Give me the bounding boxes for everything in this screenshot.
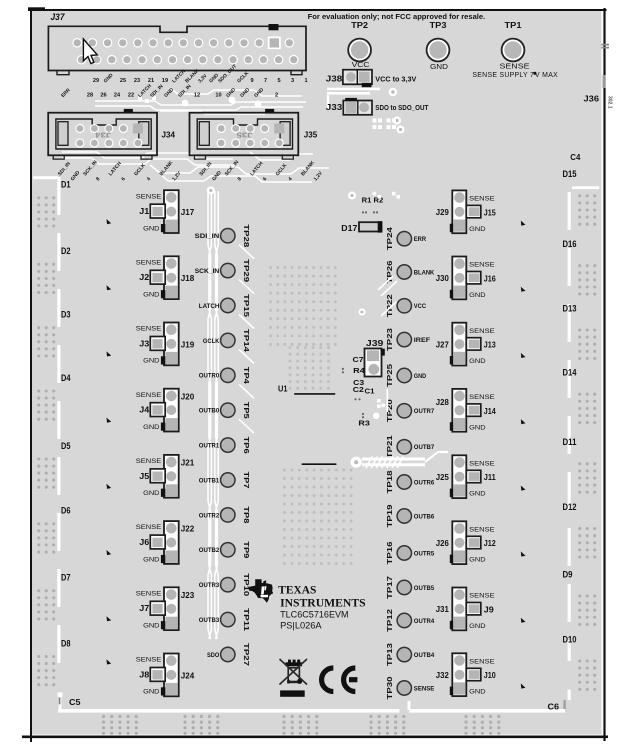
svg-text:J9: J9 [484,605,495,614]
svg-text:OUTB1: OUTB1 [199,477,220,484]
svg-text:SENSE: SENSE [469,526,495,533]
svg-text:TP8: TP8 [242,506,251,523]
svg-text:J13: J13 [484,341,497,350]
svg-text:GND: GND [143,556,160,563]
svg-text:TP6: TP6 [242,437,251,454]
svg-text:SENSE: SENSE [136,524,162,531]
svg-text:J37: J37 [51,12,66,22]
svg-text:26: 26 [100,93,106,99]
svg-text:TP4: TP4 [242,367,251,385]
svg-text:TP18: TP18 [385,471,394,494]
svg-text:TP3: TP3 [430,20,447,30]
svg-text:TP7: TP7 [242,472,251,489]
svg-text:TP16: TP16 [385,542,394,565]
svg-text:D14: D14 [563,368,577,378]
svg-text:J34: J34 [162,129,176,139]
svg-text:D2: D2 [61,246,71,256]
svg-text:D3: D3 [61,310,71,320]
svg-text:R3: R3 [358,419,370,428]
svg-text:22: 22 [128,93,134,99]
svg-text:SENSE: SENSE [136,590,162,597]
svg-text:SENSE: SENSE [136,657,162,664]
svg-text:OUTR0: OUTR0 [199,373,220,380]
svg-text:TP25: TP25 [385,364,394,387]
svg-text:C5: C5 [69,698,81,707]
svg-text:D4: D4 [61,373,71,383]
svg-text:J21: J21 [181,459,195,468]
svg-text:TP29: TP29 [242,259,251,282]
svg-text:SDO: SDO [207,652,219,659]
svg-text:OUTR1: OUTR1 [199,443,220,450]
svg-text:TP14: TP14 [242,329,251,353]
svg-text:SENSE: SENSE [469,658,495,665]
svg-text:SENSE: SENSE [469,460,495,467]
svg-text:GND: GND [143,623,160,630]
svg-text:TP23: TP23 [385,328,394,351]
svg-text:D17: D17 [341,223,357,233]
svg-text:J29: J29 [436,208,450,217]
svg-text:J8: J8 [139,670,150,679]
svg-text:J38: J38 [326,73,343,83]
svg-text:OUTR7: OUTR7 [414,408,435,415]
svg-text:J28: J28 [436,398,450,407]
svg-text:SENSE SUPPLY 7 V MAX: SENSE SUPPLY 7 V MAX [472,72,558,79]
svg-text:J20: J20 [181,392,195,401]
svg-text:OUTB4: OUTB4 [414,652,435,659]
svg-text:C6: C6 [548,703,560,712]
svg-text:9: 9 [250,78,253,84]
svg-text:GND: GND [143,424,160,431]
svg-text:LATCH: LATCH [199,303,220,310]
svg-text:D16: D16 [563,239,577,249]
svg-text:GND: GND [143,358,160,365]
svg-text:J18: J18 [181,274,195,283]
svg-text:J22: J22 [181,525,195,534]
svg-text:2: 2 [275,93,278,99]
svg-text:TP19: TP19 [385,505,394,528]
svg-text:21: 21 [148,78,154,84]
svg-text:SENSE: SENSE [469,196,495,203]
svg-text:TP30: TP30 [385,677,394,700]
svg-text:J19: J19 [181,340,195,349]
svg-text:D7: D7 [61,573,71,583]
svg-text:J6: J6 [139,538,150,547]
svg-text:10: 10 [215,93,221,99]
svg-text:TP13: TP13 [385,643,394,666]
svg-text:GND: GND [469,292,486,299]
svg-text:TP28: TP28 [242,224,251,247]
svg-text:J32: J32 [436,671,450,680]
svg-text:R4: R4 [353,366,366,375]
svg-text:ERR: ERR [414,236,426,243]
svg-text:SENSE: SENSE [469,593,495,600]
svg-text:VCC: VCC [414,303,426,310]
svg-text:3: 3 [291,78,294,84]
svg-text:D5: D5 [61,441,71,451]
svg-text:SCK_IN: SCK_IN [195,268,220,275]
svg-text:D12: D12 [563,502,577,512]
svg-text:GND: GND [143,689,160,696]
svg-text:TP1: TP1 [505,20,522,30]
svg-text:TLC6C5716EVM: TLC6C5716EVM [280,609,349,620]
svg-text:TEXAS: TEXAS [278,582,316,596]
svg-text:C2: C2 [353,385,364,394]
svg-text:J35: J35 [236,131,252,138]
svg-text:OUTR3: OUTR3 [199,582,220,589]
svg-text:TP10: TP10 [242,573,251,596]
svg-text:J27: J27 [436,340,449,349]
svg-text:J23: J23 [181,591,195,600]
svg-text:GND: GND [469,557,486,564]
svg-text:7: 7 [264,78,267,84]
svg-text:TP27: TP27 [242,643,251,666]
svg-text:D10: D10 [563,634,577,644]
svg-text:OUTB6: OUTB6 [414,513,435,520]
svg-text:For evaluation only; not FCC a: For evaluation only; not FCC approved fo… [308,12,486,21]
svg-text:SENSE: SENSE [136,193,162,200]
svg-text:D1: D1 [61,180,71,190]
svg-text:19: 19 [162,78,168,84]
svg-text:23: 23 [134,78,140,84]
svg-text:J35: J35 [304,129,318,139]
svg-text:J31: J31 [436,605,450,614]
svg-text:TP24: TP24 [385,226,394,250]
svg-text:29: 29 [93,78,99,84]
svg-text:J4: J4 [139,406,150,415]
svg-text:TP2: TP2 [351,20,368,30]
svg-text:SENSE: SENSE [469,394,495,401]
svg-text:J10: J10 [484,671,497,680]
svg-text:SENSE: SENSE [136,326,162,333]
svg-text:J36: J36 [584,94,600,104]
svg-text:GCLK: GCLK [203,338,219,345]
svg-text:GND: GND [143,225,160,232]
svg-text:GND: GND [414,373,426,380]
svg-text:J24: J24 [181,671,195,680]
svg-text:SENSE: SENSE [469,328,495,335]
svg-text:D9: D9 [563,569,573,579]
svg-text:OUTB7: OUTB7 [414,444,435,451]
svg-text:GND: GND [469,491,486,498]
svg-text:J17: J17 [181,208,195,217]
svg-text:J11: J11 [484,473,497,482]
svg-text:J2: J2 [139,273,150,282]
svg-text:SENSE: SENSE [136,392,162,399]
svg-text:GND: GND [469,623,486,630]
svg-text:GND: GND [469,424,486,431]
svg-text:GND: GND [143,292,160,299]
svg-text:OUTR5: OUTR5 [414,550,435,557]
svg-text:J39: J39 [366,338,384,348]
svg-text:D8: D8 [61,638,71,648]
svg-text:OUTB2: OUTB2 [199,547,220,554]
svg-text:OUTB3: OUTB3 [199,617,220,624]
svg-text:OUTR6: OUTR6 [414,479,435,486]
svg-text:J3: J3 [139,339,150,348]
svg-text:U1: U1 [278,385,288,394]
svg-text:VCC: VCC [352,62,370,69]
svg-text:SENSE: SENSE [469,262,495,269]
svg-text:5: 5 [277,78,280,84]
svg-text:D6: D6 [61,506,71,516]
svg-text:J15: J15 [484,208,497,217]
svg-text:SDI_IN: SDI_IN [195,233,220,240]
svg-text:C1: C1 [365,387,375,396]
svg-text:SDO to SDO_OUT: SDO to SDO_OUT [375,105,429,112]
svg-text:J33: J33 [326,102,343,112]
svg-text:J1: J1 [139,207,150,216]
svg-text:J34: J34 [95,131,111,138]
svg-text:TP9: TP9 [242,541,251,558]
svg-text:J16: J16 [484,274,497,283]
svg-text:IREF: IREF [414,337,430,344]
svg-text:OUTR2: OUTR2 [199,512,220,519]
svg-text:OUTR4: OUTR4 [414,618,435,625]
svg-text:VCC to 3,3V: VCC to 3,3V [375,76,416,83]
svg-text:BLANK: BLANK [414,269,435,276]
svg-text:SENSE: SENSE [136,259,162,266]
svg-text:J7: J7 [139,604,149,613]
svg-text:J5: J5 [139,472,150,481]
svg-text:SENSE: SENSE [414,685,435,692]
svg-text:J14: J14 [484,407,497,416]
svg-text:INSTRUMENTS: INSTRUMENTS [280,595,366,609]
svg-text:12: 12 [194,93,200,99]
svg-text:GND: GND [143,490,160,497]
svg-text:SENSE: SENSE [500,63,530,70]
svg-text:24: 24 [114,93,121,99]
svg-text:J26: J26 [436,539,450,548]
svg-text:PS|L026A: PS|L026A [280,620,322,631]
svg-text:GND: GND [430,64,448,71]
svg-text:OUTB0: OUTB0 [199,408,220,415]
svg-text:25: 25 [120,78,126,84]
svg-text:28: 28 [87,93,93,99]
svg-text:J12: J12 [484,539,497,548]
svg-text:C4: C4 [570,153,580,162]
svg-text:D13: D13 [563,303,577,313]
svg-text:GND: GND [469,689,486,696]
svg-text:TP5: TP5 [242,402,251,419]
svg-text:TP11: TP11 [242,608,251,631]
svg-text:SENSE: SENSE [136,458,162,465]
svg-text:GND: GND [469,358,486,365]
svg-text:J30: J30 [436,274,450,283]
svg-text:1: 1 [304,78,307,84]
svg-text:TP12: TP12 [385,609,394,632]
svg-text:302.1: 302.1 [607,96,613,109]
svg-text:TP17: TP17 [385,576,394,599]
svg-text:J25: J25 [436,473,450,482]
svg-text:TP15: TP15 [242,294,251,317]
svg-text:TP21: TP21 [385,435,394,458]
svg-text:D15: D15 [563,169,577,179]
svg-text:D11: D11 [563,437,577,447]
svg-text:TP20: TP20 [385,399,394,422]
svg-text:GND: GND [469,226,486,233]
svg-text:C7: C7 [353,355,364,364]
svg-text:OUTB5: OUTB5 [414,585,435,592]
